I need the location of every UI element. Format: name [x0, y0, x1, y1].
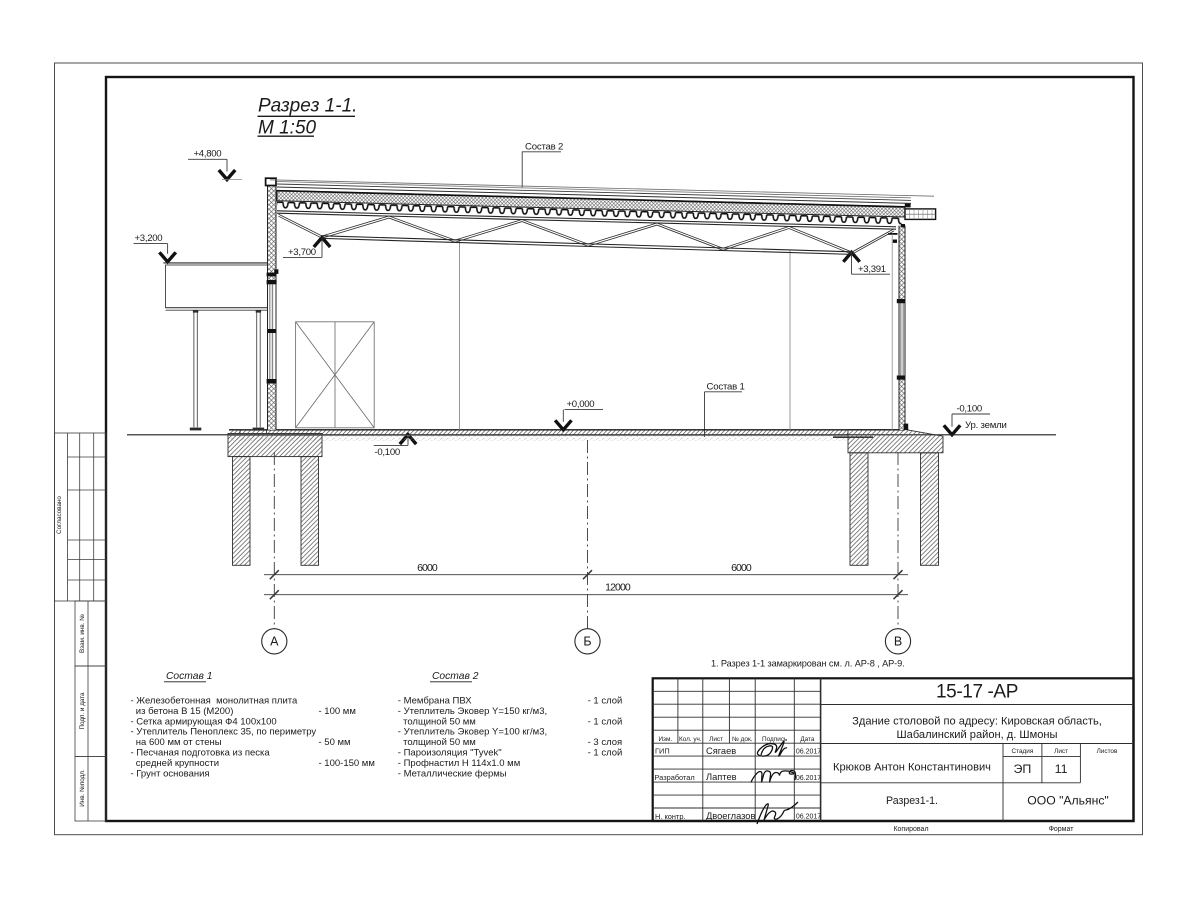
- svg-text:- 100-150 мм: - 100-150 мм: [319, 758, 375, 769]
- svg-text:- Металлические фермы: - Металлические фермы: [398, 768, 507, 779]
- svg-text:Здание столовой по адресу: Кир: Здание столовой по адресу: Кировская обл…: [852, 716, 1102, 728]
- svg-text:12000: 12000: [605, 582, 631, 594]
- svg-text:Сягаев: Сягаев: [706, 746, 736, 756]
- svg-text:Согласовано: Согласовано: [56, 496, 63, 534]
- svg-text:- 100 мм: - 100 мм: [319, 706, 356, 717]
- svg-text:Листов: Листов: [1097, 748, 1118, 755]
- svg-text:Разрез 1-1.: Разрез 1-1.: [258, 96, 357, 117]
- svg-text:Копировал: Копировал: [893, 826, 928, 833]
- svg-text:Состав 1: Состав 1: [707, 382, 745, 393]
- svg-text:Лист: Лист: [709, 736, 723, 743]
- svg-text:- Утеплитель Эковер Y=150 кг/м: - Утеплитель Эковер Y=150 кг/м3,: [398, 706, 547, 717]
- svg-text:1. Разрез 1-1 замаркирован см.: 1. Разрез 1-1 замаркирован см. л. АР-8 ,…: [711, 659, 905, 669]
- svg-text:В: В: [894, 635, 902, 649]
- svg-text:Шабалинский район, д. Шмоны: Шабалинский район, д. Шмоны: [897, 729, 1058, 741]
- svg-text:+4,800: +4,800: [194, 149, 222, 160]
- svg-text:Инв. №подл.: Инв. №подл.: [79, 769, 86, 807]
- svg-text:+3,700: +3,700: [288, 247, 316, 258]
- svg-text:- 1 слой: - 1 слой: [588, 696, 623, 707]
- svg-text:- 1 слой: - 1 слой: [588, 748, 623, 759]
- svg-text:М 1:50: М 1:50: [258, 118, 317, 139]
- svg-text:15-17 -АР: 15-17 -АР: [936, 682, 1018, 703]
- svg-text:- Утеплитель Пеноплекс 35, по: - Утеплитель Пеноплекс 35, по периметру: [131, 727, 317, 738]
- svg-text:Состав 1: Состав 1: [166, 671, 212, 682]
- svg-text:Разрез1-1.: Разрез1-1.: [886, 795, 938, 807]
- svg-text:А: А: [270, 635, 279, 649]
- svg-text:Крюков Антон Константинович: Крюков Антон Константинович: [833, 762, 991, 774]
- svg-text:-0,100: -0,100: [957, 404, 982, 415]
- svg-text:- Мембрана ПВХ: - Мембрана ПВХ: [398, 696, 472, 707]
- svg-text:Взам. инв. №: Взам. инв. №: [79, 614, 86, 653]
- svg-text:Кол. уч.: Кол. уч.: [679, 736, 702, 743]
- svg-text:Ур. земли: Ур. земли: [965, 420, 1007, 431]
- svg-text:толщиной 50 мм: толщиной 50 мм: [398, 737, 476, 748]
- svg-text:Состав 2: Состав 2: [432, 671, 479, 682]
- svg-text:06.2017: 06.2017: [796, 775, 821, 782]
- svg-text:Двоеглазов: Двоеглазов: [706, 811, 755, 821]
- svg-text:+3,391: +3,391: [858, 264, 886, 275]
- svg-text:ООО "Альянс": ООО "Альянс": [1027, 794, 1109, 808]
- svg-text:- 1 слой: - 1 слой: [588, 716, 623, 727]
- svg-text:- Железобетонная монолитная п: - Железобетонная монолитная плита: [131, 696, 298, 707]
- svg-text:- 3 слоя: - 3 слоя: [588, 737, 623, 748]
- svg-text:средней крупности: средней крупности: [131, 758, 220, 769]
- svg-text:6000: 6000: [417, 562, 438, 574]
- svg-text:Изм.: Изм.: [658, 736, 672, 743]
- svg-text:- Грунт основания: - Грунт основания: [131, 768, 210, 779]
- svg-text:Б: Б: [583, 635, 591, 649]
- svg-text:Стадия: Стадия: [1012, 748, 1034, 755]
- svg-text:Разработал: Разработал: [655, 773, 695, 782]
- svg-text:ЭП: ЭП: [1013, 762, 1031, 776]
- svg-text:- 50 мм: - 50 мм: [319, 737, 351, 748]
- svg-text:Формат: Формат: [1049, 826, 1075, 833]
- svg-text:+0,000: +0,000: [567, 399, 595, 410]
- svg-text:Подп. и дата: Подп. и дата: [79, 692, 86, 730]
- svg-text:6000: 6000: [731, 562, 752, 574]
- svg-text:11: 11: [1055, 762, 1068, 776]
- svg-text:Лаптев: Лаптев: [706, 772, 737, 782]
- svg-text:из бетона В 15 (М200): из бетона В 15 (М200): [131, 706, 234, 717]
- svg-text:Н. контр.: Н. контр.: [655, 812, 686, 821]
- svg-text:Дата: Дата: [800, 736, 815, 743]
- svg-text:ГИП: ГИП: [655, 747, 670, 756]
- svg-text:06.2017: 06.2017: [796, 814, 821, 821]
- svg-text:- Утеплитель Эковер Y=100 кг/м: - Утеплитель Эковер Y=100 кг/м3,: [398, 727, 547, 738]
- svg-text:- Сетка армирующая Ф4 100х100: - Сетка армирующая Ф4 100х100: [131, 716, 277, 727]
- svg-text:Лист: Лист: [1054, 748, 1068, 755]
- svg-text:+3,200: +3,200: [135, 233, 163, 244]
- svg-text:на 600 мм от стены: на 600 мм от стены: [131, 737, 222, 748]
- svg-text:- Профнастил Н 114х1.0 мм: - Профнастил Н 114х1.0 мм: [398, 758, 520, 769]
- svg-text:толщиной 50 мм: толщиной 50 мм: [398, 716, 476, 727]
- svg-text:06.2017: 06.2017: [796, 749, 821, 756]
- svg-text:- Пароизоляция "Tyvek": - Пароизоляция "Tyvek": [398, 748, 502, 759]
- svg-text:-0,100: -0,100: [375, 447, 400, 458]
- svg-text:- Песчаная подготовка из песка: - Песчаная подготовка из песка: [131, 748, 271, 759]
- svg-text:Состав 2: Состав 2: [525, 142, 563, 153]
- svg-text:№ док.: № док.: [732, 736, 753, 743]
